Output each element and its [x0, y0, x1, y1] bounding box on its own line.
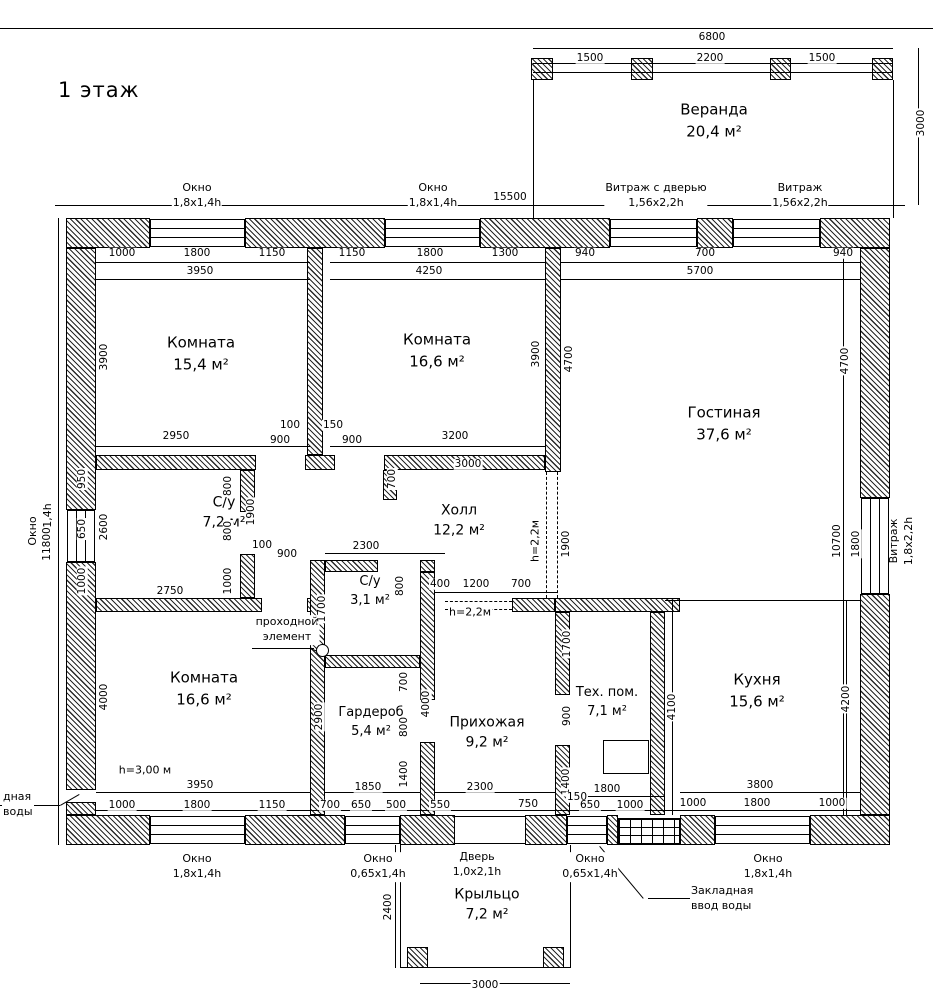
opening-label: Окно0,65x1,4h — [561, 852, 618, 882]
room-label-line2: 16,6 м² — [170, 689, 238, 711]
opening-dashed-line — [546, 472, 547, 598]
opening-dashed-line — [557, 472, 558, 598]
dimension-label: 950 — [77, 468, 88, 490]
note-label-line1: Закладная — [691, 884, 753, 899]
room-label-line2: 16,6 м² — [403, 351, 471, 373]
wall-segment — [650, 612, 665, 815]
opening-label: Дверь1,0x2,1h — [452, 850, 502, 880]
wall-segment — [66, 802, 96, 815]
room-label-line2: 15,4 м² — [167, 354, 235, 376]
dimension-label: 1200 — [462, 579, 491, 590]
dimension-label: 3900 — [99, 343, 110, 372]
room-label: Комната16,6 м² — [170, 667, 238, 711]
dimension-label: 2600 — [99, 513, 110, 542]
dimension-label: 800 — [223, 475, 234, 497]
dimension-label: 2750 — [156, 586, 185, 597]
dimension-label: 2200 — [696, 53, 725, 64]
room-label-line1: Холл — [433, 501, 485, 521]
dimension-line — [680, 792, 860, 793]
dimension-label: 1000 — [108, 800, 137, 811]
note-label-line1: h=2,2м — [529, 520, 544, 562]
opening-label-line2: 1,8x1,4h — [173, 867, 221, 882]
dimension-label: 4100 — [667, 693, 678, 722]
dimension-label: 4000 — [421, 690, 432, 719]
room-label-line1: Крыльцо — [454, 885, 519, 905]
dimension-label: 940 — [832, 248, 854, 259]
dimension-label: 100 — [251, 540, 273, 551]
dimension-label: 2300 — [466, 782, 495, 793]
note-label: h=2,2м — [448, 606, 492, 621]
wall-segment — [325, 655, 420, 668]
dimension-label: 3000 — [471, 980, 500, 991]
dimension-line — [400, 967, 571, 968]
dimension-label: 1900 — [561, 530, 572, 559]
door-opening — [455, 816, 525, 844]
opening-label-line2: 1,8x2,2h — [902, 517, 917, 565]
room-label-line2: 37,6 м² — [687, 424, 760, 446]
room-label: Тех. пом.7,1 м² — [576, 684, 638, 722]
dimension-line — [561, 262, 860, 263]
room-label-line2: 12,2 м² — [433, 521, 485, 541]
opening-label-line1: Окно — [173, 852, 221, 867]
wall-segment — [407, 947, 428, 968]
wall-segment — [543, 947, 564, 968]
window — [385, 219, 480, 247]
dimension-label: 800 — [399, 716, 410, 738]
dimension-label: 3200 — [441, 431, 470, 442]
dimension-line — [435, 792, 555, 793]
dimension-line — [96, 792, 310, 793]
dimension-label: 10700 — [832, 523, 843, 558]
opening-label-line1: Окно — [350, 852, 405, 867]
room-label: С/у3,1 м² — [350, 573, 390, 611]
window — [345, 816, 400, 844]
opening-label-line1: Витраж — [887, 517, 902, 565]
wall-segment — [607, 815, 618, 845]
dimension-label: 650 — [350, 800, 372, 811]
room-label: Холл12,2 м² — [433, 501, 485, 542]
dimension-label: 3000 — [916, 109, 927, 138]
note-label: h=3,00 м — [118, 764, 172, 779]
dimension-line — [330, 279, 546, 280]
dimension-label: 1300 — [491, 248, 520, 259]
dimension-label: 4250 — [415, 266, 444, 277]
wall-segment — [96, 455, 256, 470]
dimension-label: 700 — [387, 468, 398, 490]
opening-label: Окно1,8x1,4h — [172, 852, 222, 882]
opening-label: Окно0,65x1,4h — [349, 852, 406, 882]
window — [715, 816, 810, 844]
dimension-label: 2900 — [314, 703, 325, 732]
wall-segment — [680, 815, 715, 845]
dimension-label: 1500 — [808, 53, 837, 64]
opening-label: Окно1,8x1,4h — [172, 181, 222, 211]
opening-label-line1: Окно — [562, 852, 617, 867]
opening-label-line1: Витраж с дверью — [605, 181, 706, 196]
dimension-label: 400 — [429, 579, 451, 590]
dimension-label: 2950 — [162, 431, 191, 442]
wall-segment — [872, 58, 893, 80]
wall-segment — [525, 815, 567, 845]
dimension-label: 1800 — [183, 248, 212, 259]
dimension-line — [561, 279, 860, 280]
floor-plan: 1 этаж Веранда20,4 м²Комната15,4 м²Комна… — [0, 0, 933, 1000]
dimension-line — [330, 262, 546, 263]
dimension-label: 1800 — [593, 784, 622, 795]
dimension-label: 3950 — [186, 266, 215, 277]
dimension-label: 6800 — [698, 32, 727, 43]
window — [861, 498, 889, 594]
dimension-label: 1400 — [399, 760, 410, 789]
dimension-label: 1000 — [818, 798, 847, 809]
dimension-label: 550 — [429, 800, 451, 811]
wall-segment — [810, 815, 890, 845]
opening-label-line2: 0,65x1,4h — [350, 867, 405, 882]
dimension-label: 700 — [510, 579, 532, 590]
dimension-label: 3950 — [186, 780, 215, 791]
dimension-label: 900 — [269, 435, 291, 446]
window — [150, 219, 245, 247]
wall-segment — [531, 58, 553, 80]
pass-through-element — [316, 644, 329, 657]
dimension-label: 4000 — [99, 683, 110, 712]
dimension-label: 4700 — [564, 345, 575, 374]
room-label: Комната16,6 м² — [403, 329, 471, 373]
dimension-label: 5700 — [686, 266, 715, 277]
dimension-label: 800 — [395, 575, 406, 597]
dimension-label: 900 — [562, 705, 573, 727]
room-label: Крыльцо7,2 м² — [454, 885, 519, 926]
note-label-line2: ввод воды — [691, 899, 753, 914]
wall-segment — [555, 598, 680, 612]
opening-label-line1: Дверь — [453, 850, 501, 865]
dimension-line — [843, 248, 844, 815]
wall-segment — [96, 598, 262, 612]
dimension-label: 1000 — [223, 567, 234, 596]
dimension-label: 1800 — [851, 530, 862, 559]
dimension-line — [325, 553, 445, 554]
wall-segment — [400, 815, 455, 845]
dimension-label: 3800 — [746, 780, 775, 791]
opening-label-line2: 1,8x1,4h — [744, 867, 792, 882]
dimension-line — [533, 72, 893, 73]
opening-label-line2: 1,56x2,2h — [772, 196, 827, 211]
room-label-line1: Тех. пом. — [576, 684, 638, 703]
room-label-line1: Комната — [167, 332, 235, 354]
wall-segment — [770, 58, 791, 80]
dimension-label: 3900 — [531, 340, 542, 369]
dimension-line — [0, 28, 933, 29]
wall-segment — [860, 248, 890, 498]
wall-segment — [66, 815, 150, 845]
dimension-line — [893, 80, 894, 218]
opening-label-line2: 1,0x2,1h — [453, 865, 501, 880]
room-label-line2: 7,2 м² — [454, 905, 519, 925]
dimension-label: 1850 — [354, 782, 383, 793]
wall-segment — [66, 562, 96, 790]
dimension-label: 800 — [223, 520, 234, 542]
dimension-label: 3000 — [454, 459, 483, 470]
room-label-line1: Комната — [403, 329, 471, 351]
wall-segment — [545, 248, 561, 472]
wall-segment — [512, 598, 555, 612]
dimension-label: 1500 — [576, 53, 605, 64]
room-label-line1: Гостиная — [687, 402, 760, 424]
room-label-line1: С/у — [350, 573, 390, 592]
dimension-label: 1150 — [258, 800, 287, 811]
dimension-label: 4700 — [840, 347, 851, 376]
wall-segment — [240, 554, 255, 598]
wall-segment — [245, 218, 385, 248]
dimension-label: 940 — [574, 248, 596, 259]
dimension-label: 900 — [276, 549, 298, 560]
room-label-line2: 15,6 м² — [729, 691, 785, 713]
dimension-label: 11800 — [42, 526, 53, 561]
dimension-label: 700 — [694, 248, 716, 259]
wall-segment — [631, 58, 653, 80]
opening-label-line1: Окно — [26, 503, 41, 558]
note-label-line2: воды — [3, 805, 33, 820]
dimension-label: 1800 — [743, 798, 772, 809]
dimension-label: 650 — [579, 800, 601, 811]
wall-segment — [66, 218, 150, 248]
room-label-line1: Кухня — [729, 669, 785, 691]
window — [150, 816, 245, 844]
dimension-label: 700 — [399, 671, 410, 693]
room-label: Гардероб5,4 м² — [338, 704, 403, 742]
dimension-label: 2300 — [352, 541, 381, 552]
room-label: Комната15,4 м² — [167, 332, 235, 376]
note-label-line1: h=2,2м — [449, 606, 491, 621]
opening-label-line1: Окно — [173, 181, 221, 196]
opening-dashed-line — [445, 601, 512, 602]
wall-segment — [245, 815, 345, 845]
room-label-line2: 5,4 м² — [338, 723, 403, 742]
note-label: днаяводы — [2, 790, 34, 820]
dimension-label: 750 — [517, 799, 539, 810]
opening-label: Витраж1,56x2,2h — [771, 181, 828, 211]
room-label-line2: 7,1 м² — [576, 703, 638, 722]
plan-title: 1 этаж — [58, 78, 140, 102]
dimension-label: 1800 — [183, 800, 212, 811]
dimension-label: 1150 — [258, 248, 287, 259]
opening-label: Витраж с дверью1,56x2,2h — [604, 181, 707, 211]
note-label-line1: проходной — [256, 615, 319, 630]
room-label-line1: Прихожая — [450, 713, 525, 733]
dimension-label: 1700 — [562, 630, 573, 659]
opening-label-line1: Витраж — [772, 181, 827, 196]
dimension-line — [96, 446, 310, 447]
opening-label: Витраж1,8x2,2h — [887, 516, 917, 566]
dimension-line — [435, 592, 557, 593]
note-label-line1: дная — [3, 790, 33, 805]
dimension-line — [96, 262, 310, 263]
dimension-label: 1700 — [317, 595, 328, 624]
opening-label: Окно1,8x1,4h — [743, 852, 793, 882]
note-label: h=2,2м — [529, 519, 544, 563]
room-label: Веранда20,4 м² — [680, 99, 748, 143]
wall-segment — [420, 572, 435, 700]
opening-label-line1: Окно — [409, 181, 457, 196]
water-inlet-detail — [618, 818, 680, 845]
room-label: Кухня15,6 м² — [729, 669, 785, 713]
opening-label-line2: 1,8x1,4h — [409, 196, 457, 211]
room-label: Гостиная37,6 м² — [687, 402, 760, 446]
opening-label-line2: 0,65x1,4h — [562, 867, 617, 882]
opening-label: Окно1,8x1,4h — [408, 181, 458, 211]
note-label-line2: элемент — [256, 630, 319, 645]
window — [733, 219, 820, 247]
wall-segment — [860, 594, 890, 815]
wall-segment — [420, 560, 435, 572]
room-label: Прихожая9,2 м² — [450, 713, 525, 754]
dimension-label: 150 — [322, 420, 344, 431]
dimension-line — [252, 648, 314, 649]
dimension-label: 700 — [319, 800, 341, 811]
opening-label-line1: Окно — [744, 852, 792, 867]
window — [610, 219, 697, 247]
dimension-label: 2400 — [383, 893, 394, 922]
dimension-line — [533, 48, 893, 49]
opening-label-line2: 1,56x2,2h — [605, 196, 706, 211]
dimension-line — [665, 600, 860, 601]
wall-segment — [305, 455, 335, 470]
note-label: проходнойэлемент — [255, 615, 320, 645]
dimension-label: 650 — [77, 518, 88, 540]
room-label-line1: Гардероб — [338, 704, 403, 723]
dimension-line — [96, 279, 310, 280]
wall-segment — [820, 218, 890, 248]
dimension-label: 1150 — [338, 248, 367, 259]
window — [567, 816, 607, 844]
note-label-line1: h=3,00 м — [119, 764, 171, 779]
wall-segment — [480, 218, 610, 248]
dimension-label: 1900 — [246, 498, 257, 527]
dimension-label: 1800 — [416, 248, 445, 259]
wall-segment — [697, 218, 733, 248]
room-label-line2: 3,1 м² — [350, 592, 390, 611]
dimension-line — [533, 80, 534, 218]
dimension-label: 1000 — [616, 800, 645, 811]
dimension-line — [330, 446, 545, 447]
dimension-label: 500 — [385, 800, 407, 811]
dimension-label: 1000 — [77, 567, 88, 596]
dimension-label: 15500 — [492, 192, 527, 203]
equipment-box — [603, 740, 649, 774]
room-label-line1: Комната — [170, 667, 238, 689]
opening-label-line2: 1,8x1,4h — [173, 196, 221, 211]
note-label: Закладнаяввод воды — [690, 884, 754, 914]
room-label-line1: Веранда — [680, 99, 748, 121]
dimension-label: 900 — [341, 435, 363, 446]
dimension-label: 4200 — [841, 685, 852, 714]
wall-segment — [325, 560, 378, 572]
dimension-line — [58, 218, 59, 845]
dimension-label: 1000 — [108, 248, 137, 259]
room-label-line2: 9,2 м² — [450, 733, 525, 753]
dimension-label: 1000 — [679, 798, 708, 809]
room-label-line2: 20,4 м² — [680, 121, 748, 143]
dimension-label: 100 — [279, 420, 301, 431]
